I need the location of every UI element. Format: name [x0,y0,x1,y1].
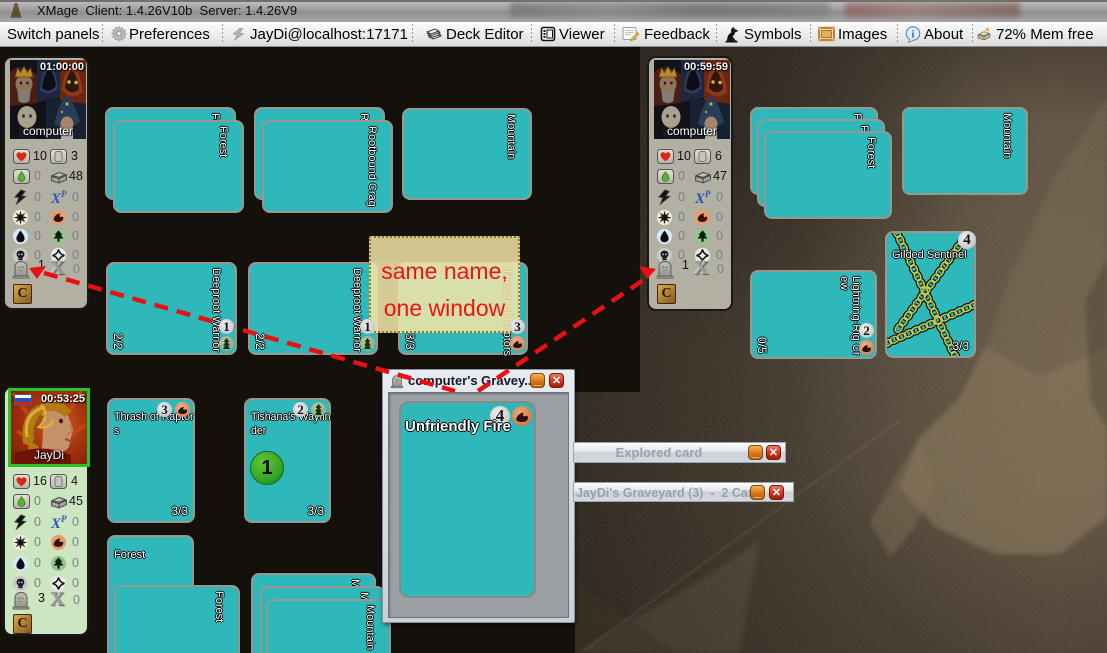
svg-text:i: i [912,29,915,40]
